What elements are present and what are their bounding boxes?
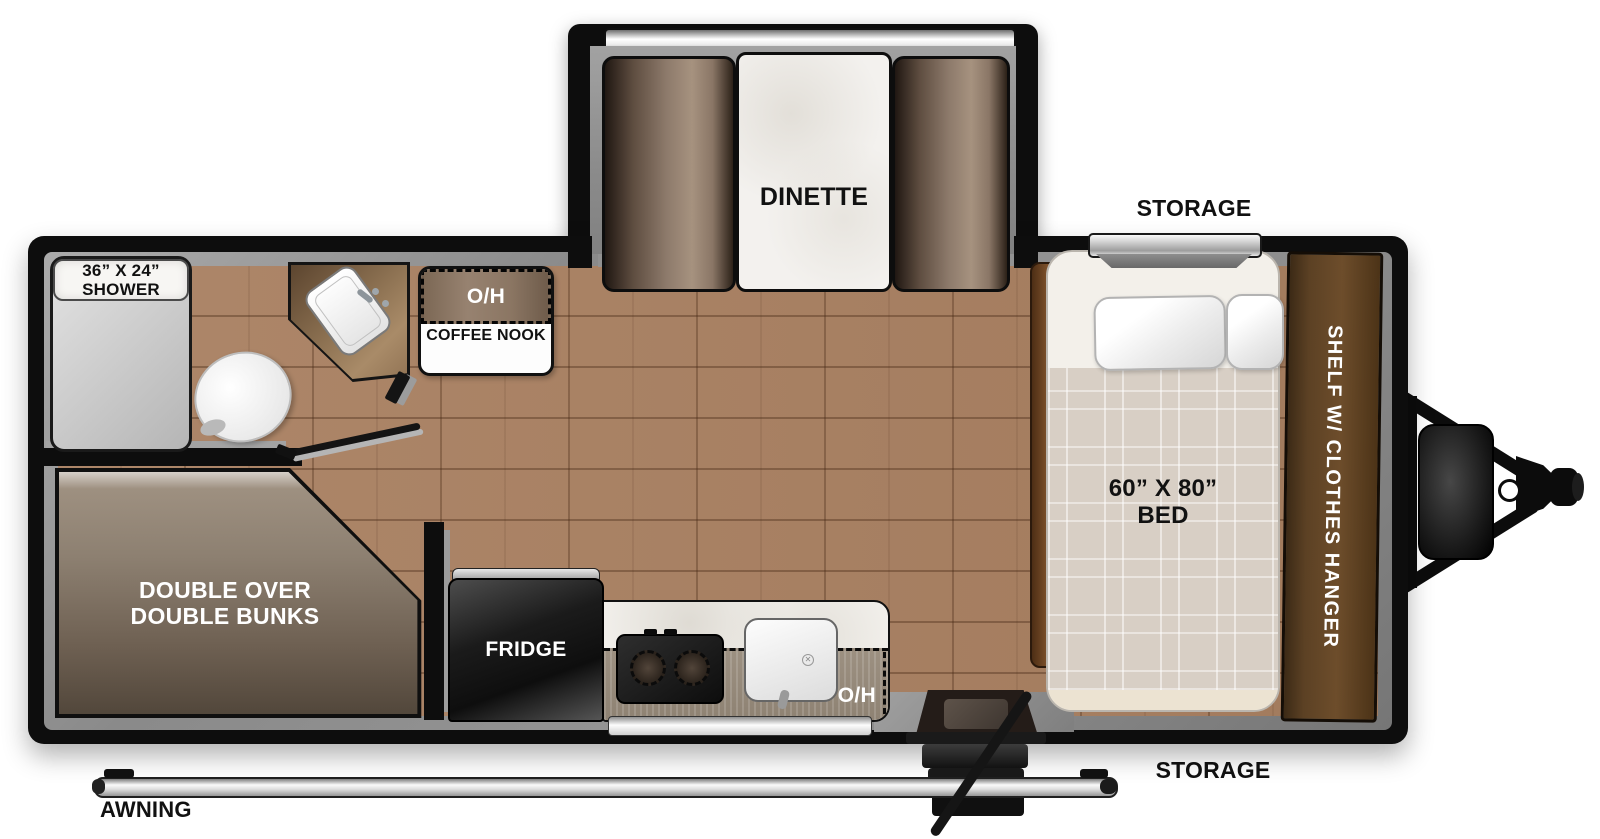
bunks-label: DOUBLE OVER DOUBLE BUNKS [55,578,395,630]
rv-floorplan: DINETTE 36” X 24” SHOWER O/H COFFEE NOOK… [0,0,1600,839]
hitch-ball-socket [1498,479,1521,502]
propane-tank [1418,424,1494,560]
dinette-bench-right [892,56,1010,292]
dinette-label: DINETTE [739,183,889,211]
dinette-table: DINETTE [736,52,892,292]
awning-clip [1080,769,1108,778]
bed-foot-strip [1048,690,1278,710]
coffee-nook-oh-label: O/H [467,285,505,309]
awning-end-cap-left [92,779,105,794]
kitchen-oh-label: O/H [838,684,876,708]
fridge: FRIDGE [448,578,604,722]
burner [630,650,666,686]
wardrobe-shelf: SHELF W/ CLOTHES HANGER [1281,251,1384,722]
entry-door-threshold [906,732,1046,744]
cooktop-knob [664,629,677,635]
awning-clip [104,769,134,778]
hitch-tip-cap [1572,473,1584,501]
cooktop [616,634,724,704]
sink-drain: ✕ [802,654,814,666]
awning-end-cap-right [1100,779,1117,794]
kitchen-overhead-dashed-edge [883,652,886,714]
faucet-dot [382,300,389,307]
slideout-wall-left [568,236,592,268]
kitchen-window [608,716,872,736]
kitchen-sink: ✕ [744,618,838,702]
entry-door-panel [944,699,1008,729]
shelf-label: SHELF W/ CLOTHES HANGER [1318,325,1346,649]
shower-label: 36” X 24” SHOWER [82,261,160,299]
storage-hatch-rear-inner [1096,254,1252,268]
bed-label: 60” X 80” BED [1078,476,1248,530]
coffee-nook-overhead: O/H [421,269,551,324]
awning-label: AWNING [100,798,240,823]
faucet-dot [372,288,379,295]
burner [674,650,710,686]
pillow [1226,294,1284,370]
coffee-nook-label: COFFEE NOOK [421,327,551,345]
pillow [1093,295,1226,371]
dinette-bench-left [602,56,736,292]
coffee-nook-cabinet: O/H COFFEE NOOK [418,266,554,376]
fridge-label: FRIDGE [485,638,566,662]
shower-pan: 36” X 24” SHOWER [53,259,189,301]
storage-rear-label: STORAGE [1104,196,1284,222]
shower: 36” X 24” SHOWER [50,256,192,452]
cooktop-knob [644,629,657,635]
storage-front-label: STORAGE [1128,758,1298,784]
interior-wall-stub [424,522,444,720]
